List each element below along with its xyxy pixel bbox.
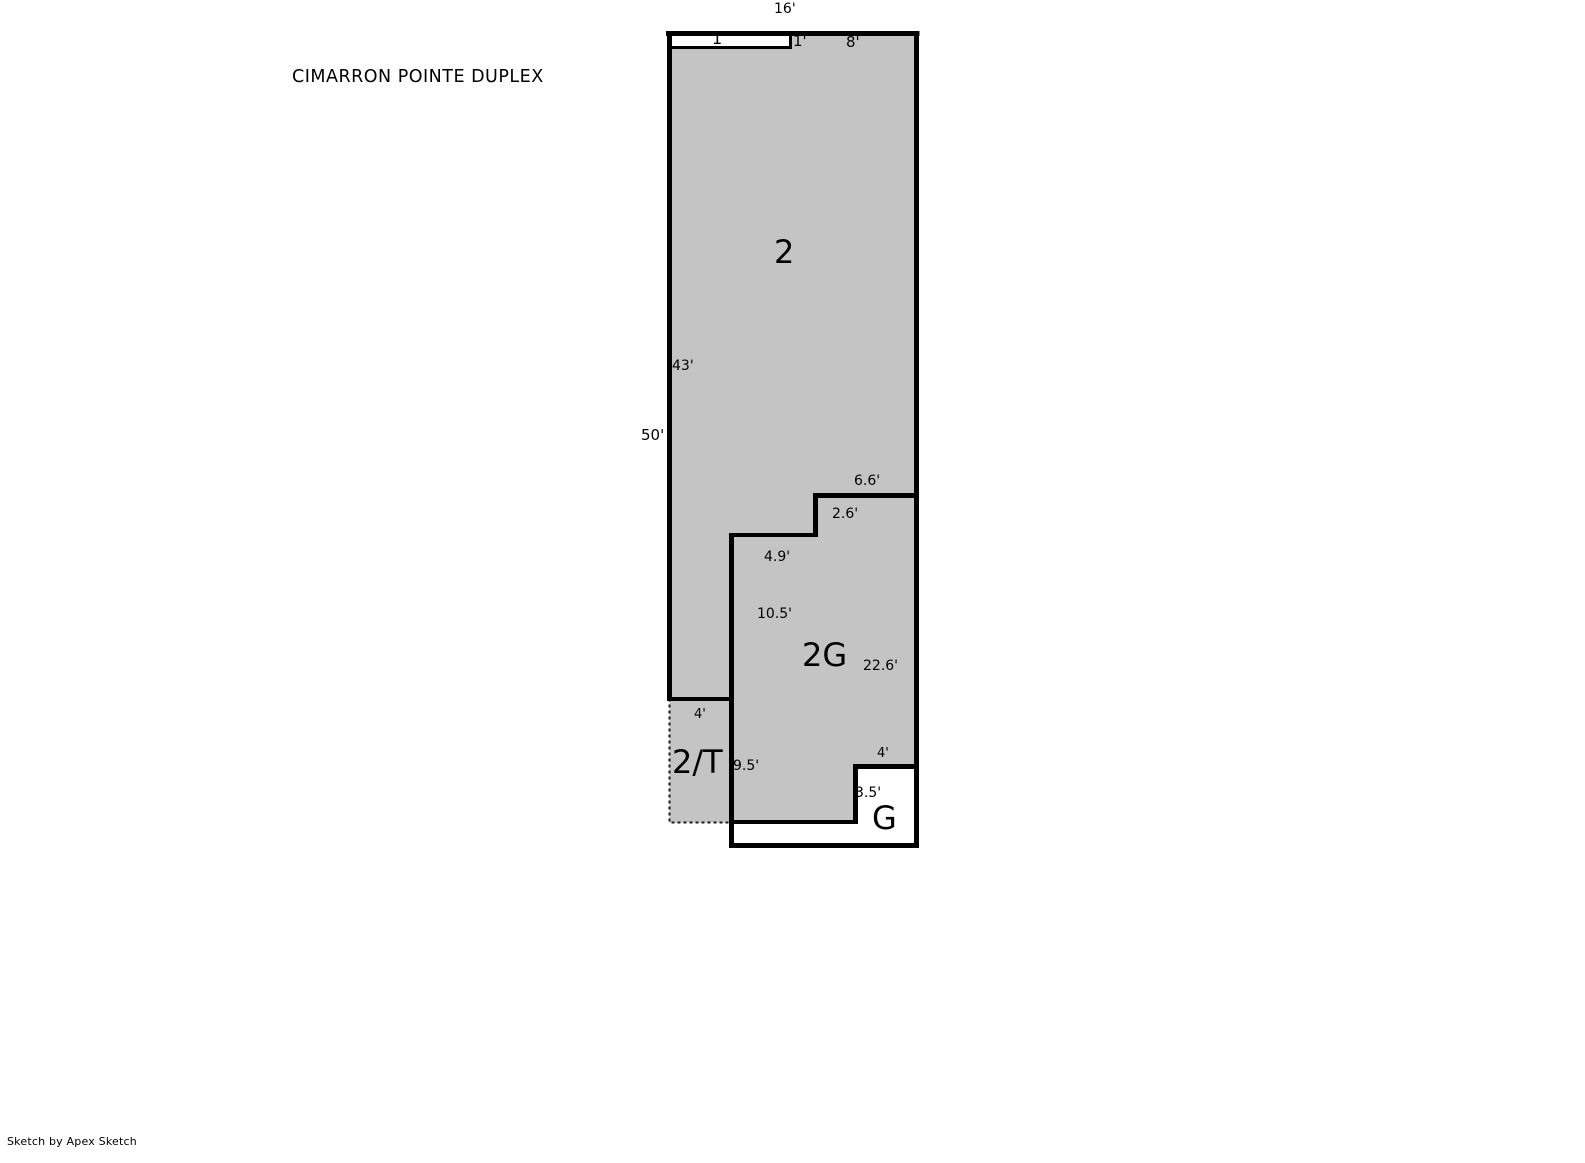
dim-top-width: 16' <box>774 2 796 17</box>
area-2t-label: 2/T <box>672 745 723 780</box>
area-1-label: 1 <box>712 30 722 48</box>
dim-mid-wall: 10.5' <box>757 607 792 622</box>
sketch-page: CIMARRON POINTE DUPLEX 16' 1 1' 8' 2 43'… <box>0 0 1585 1163</box>
floorplan-svg <box>0 0 1585 1163</box>
dim-step-lower-width: 4.9' <box>764 550 790 565</box>
dim-top-right-segment: 8' <box>846 34 860 51</box>
apex-credit: Sketch by Apex Sketch <box>7 1136 137 1148</box>
dim-left-overall: 50' <box>641 427 664 444</box>
dim-terrace-width: 4' <box>694 708 706 722</box>
dim-terrace-height: 9.5' <box>733 759 759 774</box>
dim-step-upper-width: 6.6' <box>854 474 880 489</box>
dim-right-lower: 22.6' <box>863 659 898 674</box>
area-g-label: G <box>872 801 897 836</box>
sketch-title: CIMARRON POINTE DUPLEX <box>292 68 544 87</box>
area-2g-label: 2G <box>802 638 847 673</box>
dim-garage-notch-width: 4' <box>877 747 889 761</box>
dim-left-upper: 43' <box>672 359 694 374</box>
dim-strip-height: 1' <box>793 33 807 50</box>
area-2-label: 2 <box>774 235 794 270</box>
dim-step-height: 2.6' <box>832 507 858 522</box>
